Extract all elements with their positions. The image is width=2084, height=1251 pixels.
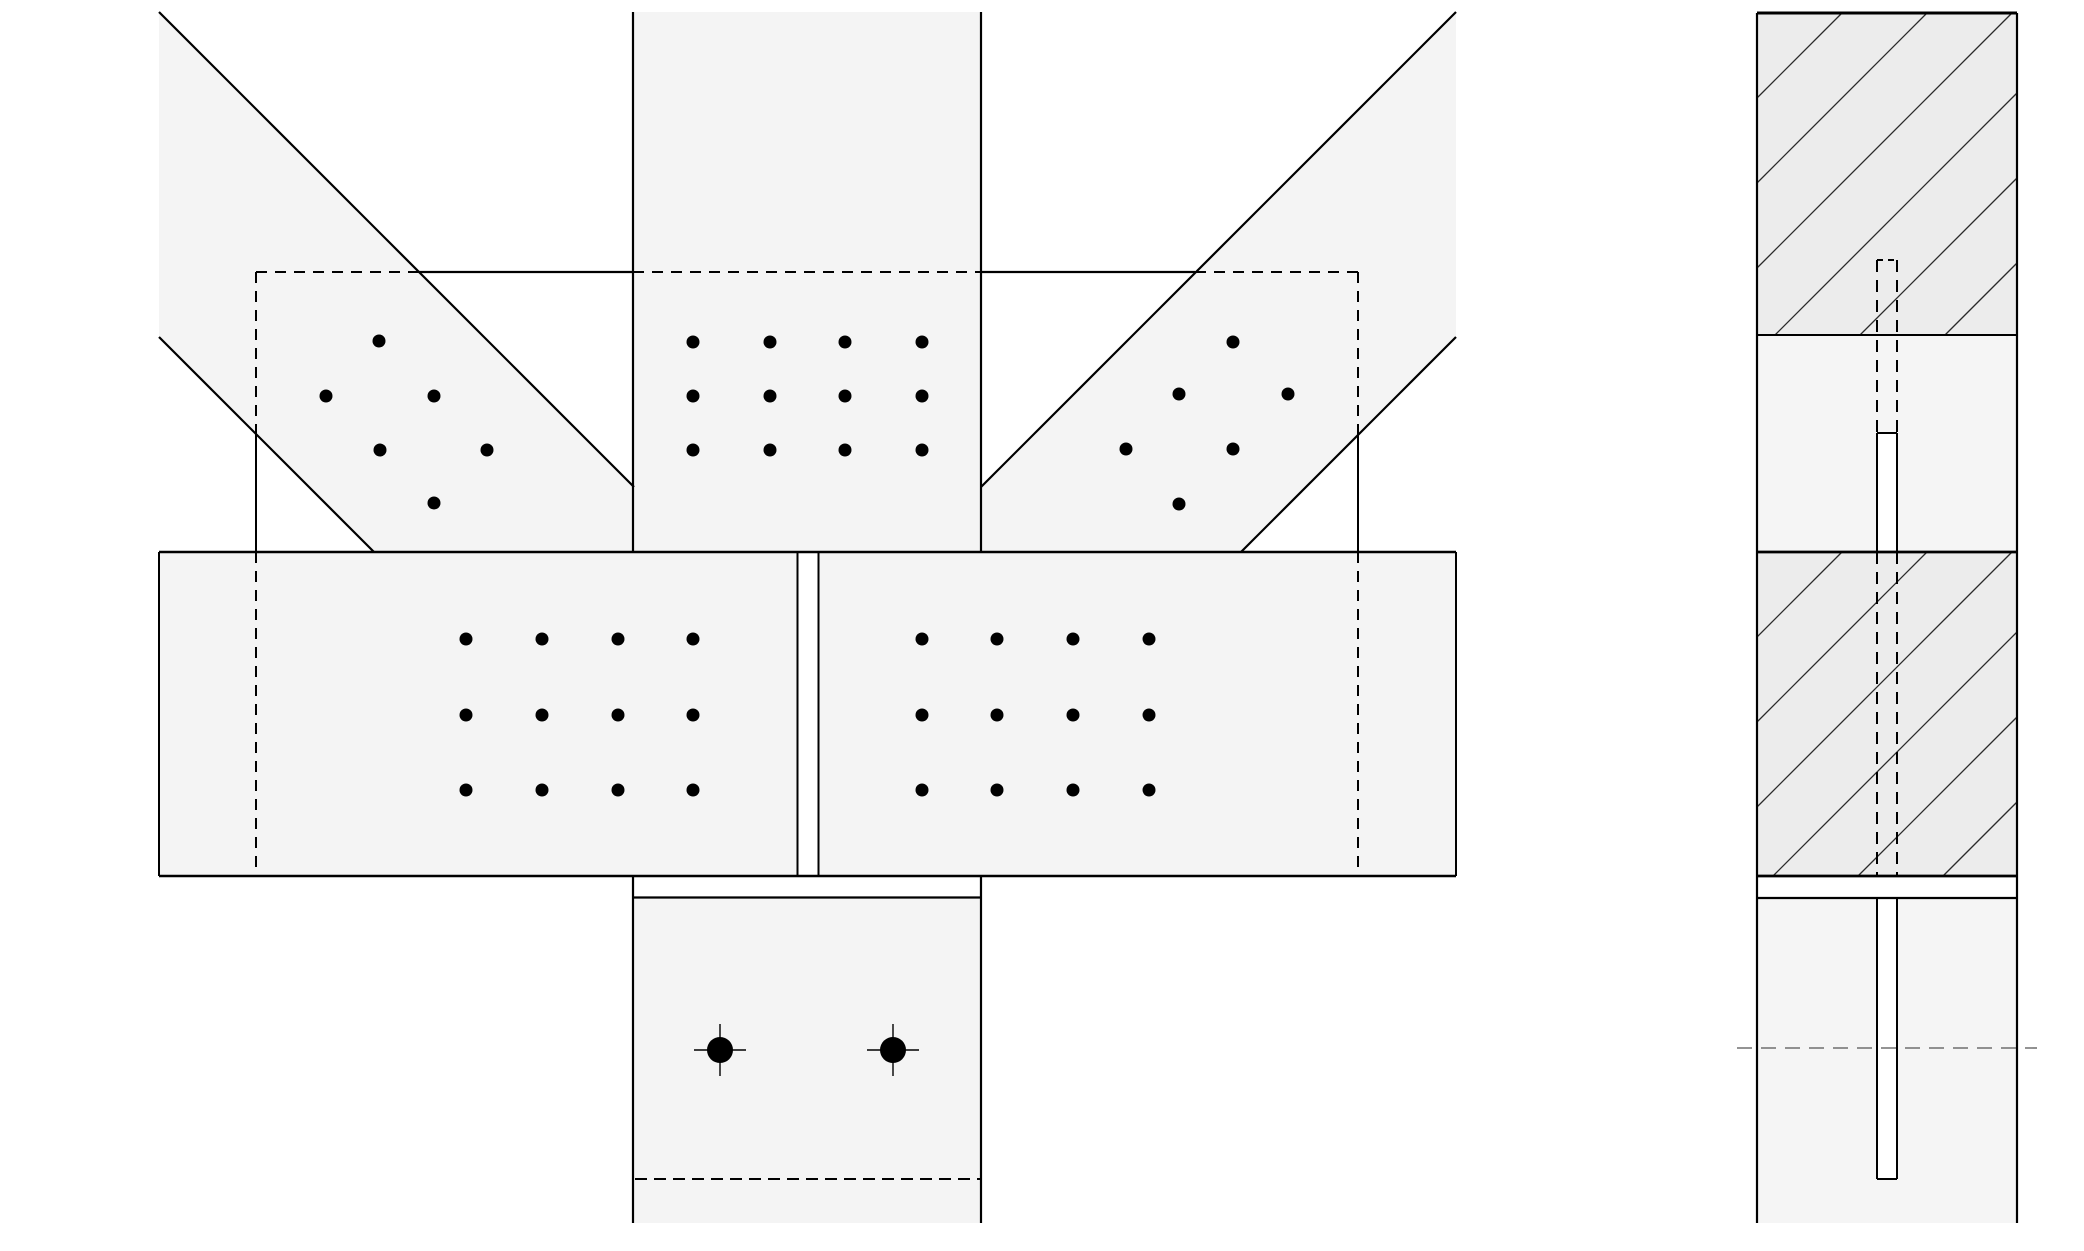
connection-detail-drawing (0, 0, 2084, 1251)
drawing-canvas (0, 0, 2084, 1251)
beam-right-bolt-group-bolt-dot (991, 709, 1004, 722)
anchor-bolt (880, 1037, 906, 1063)
beam-left-bolt-group-bolt-dot (536, 784, 549, 797)
beam-right-bolt-group-bolt-dot (916, 784, 929, 797)
slot-visible-upper (1877, 433, 1897, 552)
column-bolt-group-bolt-dot (916, 444, 929, 457)
right-brace-bolt-group-bolt-dot (1282, 388, 1295, 401)
beam-right-bolt-group-bolt-dot (991, 633, 1004, 646)
beam-left-bolt-group-bolt-dot (687, 709, 700, 722)
left-brace-bolt-group-bolt-dot (374, 444, 387, 457)
anchor-bolt (707, 1037, 733, 1063)
column-bolt-group-bolt-dot (687, 444, 700, 457)
stub-column (633, 876, 981, 1223)
right-brace-bolt-group-bolt-dot (1227, 443, 1240, 456)
beam-left-bolt-group-bolt-dot (460, 784, 473, 797)
beam-right-bolt-group-bolt-dot (916, 709, 929, 722)
column-bolt-group-bolt-dot (764, 444, 777, 457)
beam-right-bolt-group-bolt-dot (1067, 633, 1080, 646)
left-brace-bolt-group-bolt-dot (481, 444, 494, 457)
left-brace-bolt-group-bolt-dot (428, 497, 441, 510)
column-bolt-group-bolt-dot (916, 336, 929, 349)
beam-left-bolt-group-bolt-dot (536, 709, 549, 722)
side-beam-hatched-block (1757, 552, 2017, 876)
beam-right-bolt-group-bolt-dot (1067, 709, 1080, 722)
beam-right-bolt-group-bolt-dot (1143, 709, 1156, 722)
side-top-hatched-block (1757, 13, 2017, 335)
beam-right-bolt-group-bolt-dot (1143, 633, 1156, 646)
beam-right-bolt-group-bolt-dot (991, 784, 1004, 797)
column-bolt-group-bolt-dot (916, 390, 929, 403)
side-gap-band (1757, 876, 2017, 898)
beam-left-bolt-group-bolt-dot (612, 784, 625, 797)
column-bolt-group-bolt-dot (839, 444, 852, 457)
right-brace-bolt-group-bolt-dot (1173, 498, 1186, 511)
beam-left-bolt-group-bolt-dot (612, 633, 625, 646)
beam-left-bolt-group-bolt-dot (687, 784, 700, 797)
column-bolt-group-bolt-dot (764, 390, 777, 403)
right-brace (981, 12, 1456, 552)
left-brace-bolt-group-bolt-dot (373, 335, 386, 348)
beam-right-bolt-group-bolt-dot (1143, 784, 1156, 797)
column-bolt-group-bolt-dot (764, 336, 777, 349)
beam-right-bolt-group-bolt-dot (1067, 784, 1080, 797)
beam-left-bolt-group-bolt-dot (460, 709, 473, 722)
left-brace-bolt-group-bolt-dot (428, 390, 441, 403)
column-bolt-group-bolt-dot (839, 390, 852, 403)
beam-splice-gap (799, 553, 818, 875)
right-brace-bolt-group-bolt-dot (1173, 388, 1186, 401)
beam-left-bolt-group-bolt-dot (536, 633, 549, 646)
beam-right-bolt-group-bolt-dot (916, 633, 929, 646)
column-bolt-group-bolt-dot (687, 390, 700, 403)
beam-left-bolt-group-bolt-dot (460, 633, 473, 646)
left-brace (159, 12, 634, 552)
right-brace-bolt-group-bolt-dot (1227, 336, 1240, 349)
stub-top-gap (635, 878, 980, 897)
left-brace-bolt-group-bolt-dot (320, 390, 333, 403)
column-bolt-group-bolt-dot (839, 336, 852, 349)
beam-left-bolt-group-bolt-dot (612, 709, 625, 722)
slot-visible-lower (1877, 898, 1897, 1179)
column (633, 12, 981, 552)
column-bolt-group-bolt-dot (687, 336, 700, 349)
right-brace-bolt-group-bolt-dot (1120, 443, 1133, 456)
beam-left-bolt-group-bolt-dot (687, 633, 700, 646)
